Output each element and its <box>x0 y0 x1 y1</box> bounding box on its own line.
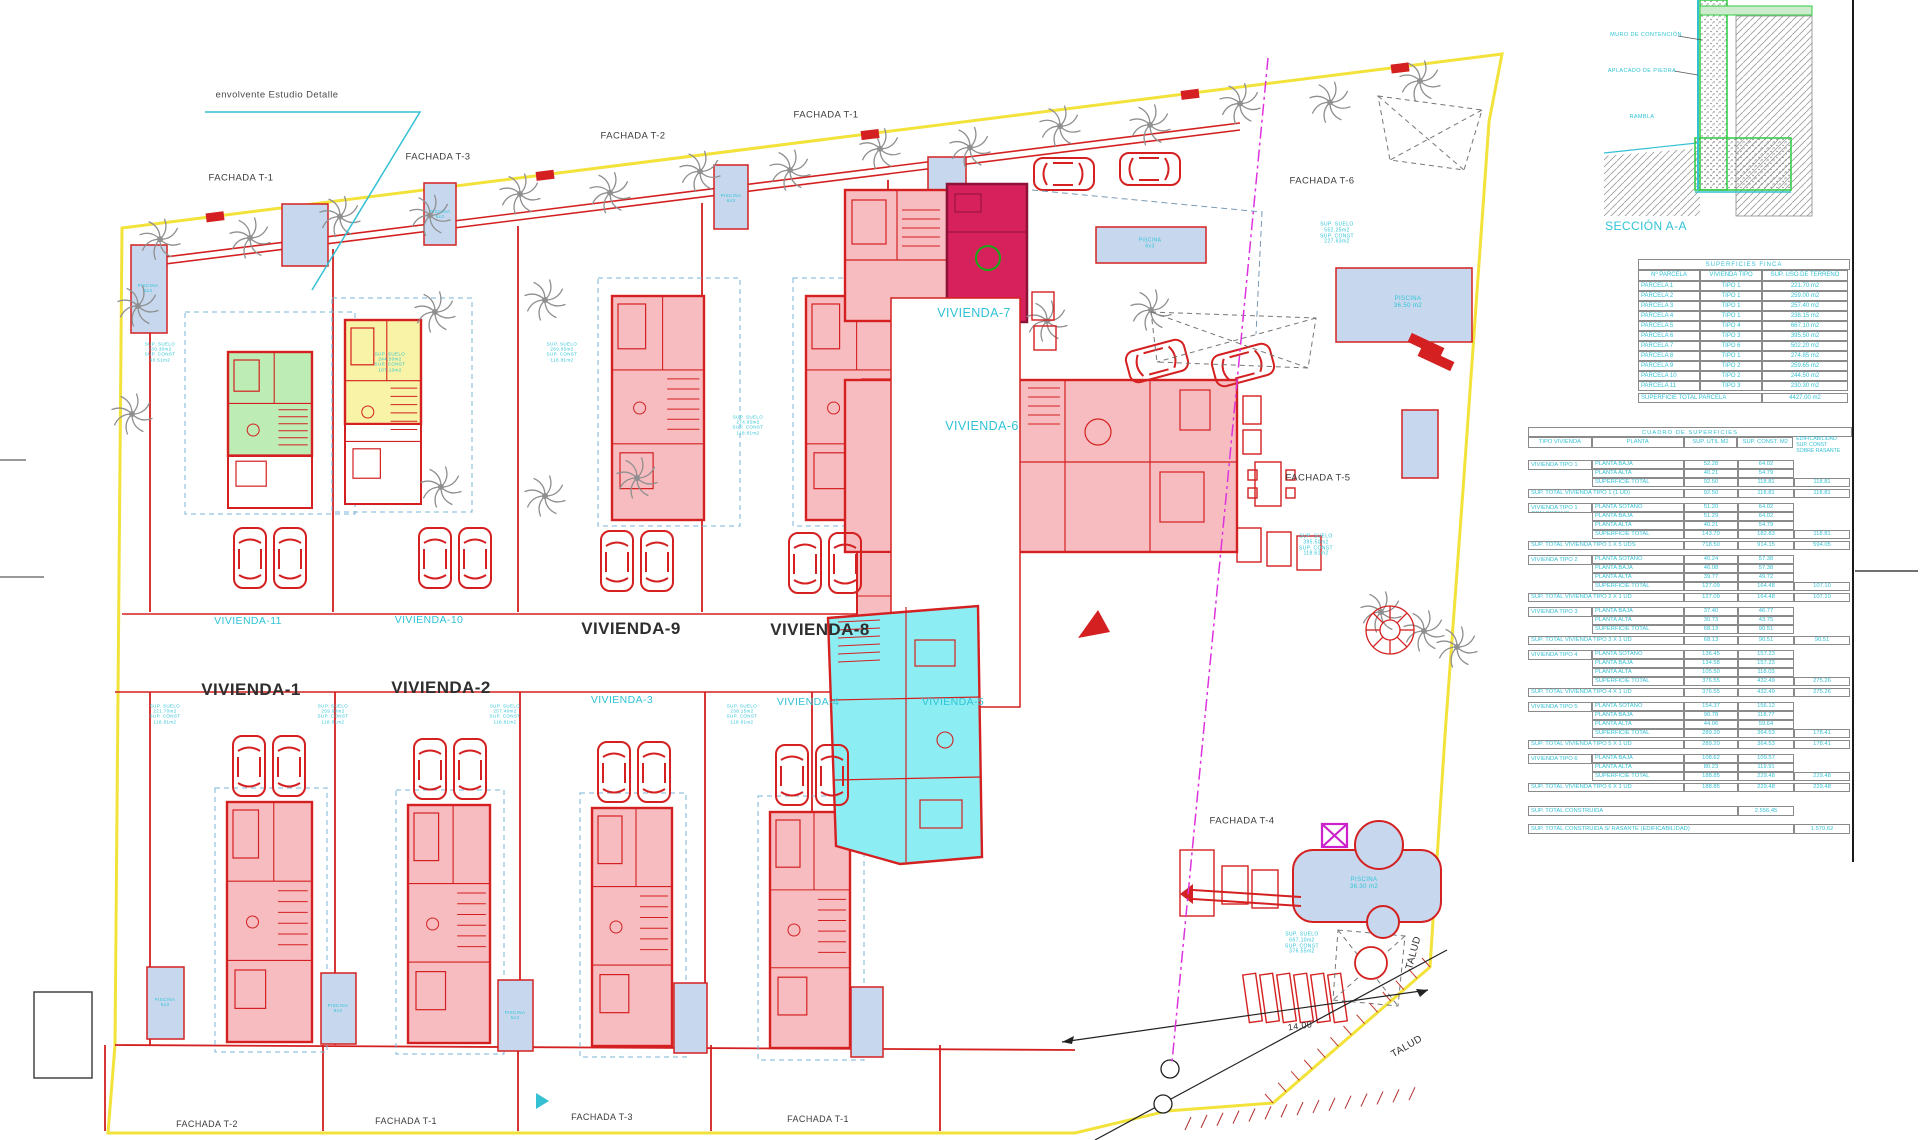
palm-tree-icon <box>525 280 566 321</box>
areas-cell: 289.20 <box>1684 729 1738 738</box>
furniture-outline <box>1222 866 1248 904</box>
finca-cell: 502.20 m2 <box>1762 341 1848 351</box>
palm-tree-icon <box>1310 82 1351 123</box>
areas-group-total: SUP. TOTAL VIVIENDA TIPO 1 X 5 UDS718.50… <box>1528 541 1852 550</box>
areas-cell: SUPERFICIE TOTAL <box>1592 729 1684 738</box>
areas-cell: 229.48 <box>1794 772 1850 781</box>
finca-cell: 244.50 m2 <box>1762 371 1848 381</box>
areas-group: VIVIENDA TIPO 1 CON SOTANOPLANTA SOTANO5… <box>1528 503 1852 539</box>
grand-total-label: SUP. TOTAL CONSTRUIDA <box>1528 806 1738 816</box>
areas-total-value: 107.10 <box>1794 593 1850 602</box>
arrow-icon <box>1180 884 1193 904</box>
finca-cell: TIPO 4 <box>1700 321 1762 331</box>
table-row: PLANTA ALTA44.0659.64 <box>1592 720 1850 729</box>
finca-cell: 395.50 m2 <box>1762 331 1848 341</box>
road-marker <box>1391 62 1410 73</box>
areas-cell: PLANTA BAJA <box>1592 754 1684 763</box>
areas-total-label: SUP. TOTAL VIVIENDA TIPO 2 X 1 UD <box>1528 593 1684 602</box>
table-row: SUPERFICIE TOTAL68.1390.51 <box>1592 625 1794 634</box>
areas-cell: 188.85 <box>1684 772 1738 781</box>
areas-cell: PLANTA SOTANO <box>1592 503 1684 512</box>
finca-cell: PARCELA 1 <box>1638 281 1700 291</box>
areas-cell: PLANTA BAJA <box>1592 659 1684 668</box>
finca-cell: 221.70 m2 <box>1762 281 1848 291</box>
table-row: PARCELA 11TIPO 3230.30 m2 <box>1638 381 1850 391</box>
palm-tree-icon <box>1131 290 1172 331</box>
finca-total-value: 4427.00 m2 <box>1762 393 1848 403</box>
areas-cell: 118.81 <box>1738 478 1794 487</box>
areas-group-tipo: VIVIENDA TIPO 3 <box>1528 607 1592 617</box>
survey-point <box>1154 1095 1172 1113</box>
areas-group: VIVIENDA TIPO 2PLANTA SOTANO40.2457.38PL… <box>1528 555 1852 591</box>
finca-cell: 230.30 m2 <box>1762 381 1848 391</box>
pergola-sail <box>1378 96 1482 170</box>
areas-group-total: SUP. TOTAL VIVIENDA TIPO 4 X 1 UD376.554… <box>1528 688 1852 697</box>
areas-cell: 59.64 <box>1738 720 1794 729</box>
furniture-outline <box>1286 470 1295 480</box>
house-plan <box>408 805 490 1043</box>
car-icon <box>273 736 305 796</box>
areas-cell: 109.57 <box>1738 754 1794 763</box>
table-row: SUPERFICIE TOTAL376.55432.49275.26 <box>1592 677 1850 686</box>
table-row: SUPERFICIE TOTAL289.20364.53178.41 <box>1592 729 1850 738</box>
finca-total-label: SUPERFICIE TOTAL PARCELA <box>1638 393 1762 403</box>
table-row: PLANTA ALTA40.2154.79 <box>1592 521 1850 530</box>
finca-cell: PARCELA 10 <box>1638 371 1700 381</box>
pool <box>131 245 167 333</box>
areas-cell: PLANTA BAJA <box>1592 512 1684 521</box>
areas-total-value: 914.15 <box>1738 541 1794 550</box>
areas-total-label: SUP. TOTAL VIVIENDA TIPO 1 (1 UD) <box>1528 489 1684 498</box>
pool <box>147 967 184 1039</box>
table-row: PARCELA 3TIPO 1257.40 m2 <box>1638 301 1850 311</box>
areas-cell: PLANTA ALTA <box>1592 573 1684 582</box>
finca-cell: TIPO 1 <box>1700 351 1762 361</box>
table-row: PLANTA SOTANO51.2064.02 <box>1592 503 1850 512</box>
finca-cell: 667.10 m2 <box>1762 321 1848 331</box>
areas-cell: 157.23 <box>1738 659 1794 668</box>
talud-tick <box>1291 1071 1299 1080</box>
areas-cell: 57.38 <box>1738 555 1794 564</box>
areas-group-tipo: VIVIENDA TIPO 1 <box>1528 460 1592 470</box>
car-icon <box>234 528 266 588</box>
furniture-outline <box>1034 326 1056 350</box>
talud-tick <box>1357 1015 1365 1024</box>
road-marker <box>1181 89 1200 100</box>
areas-cell: PLANTA BAJA <box>1592 460 1684 469</box>
areas-cell: PLANTA SOTANO <box>1592 650 1684 659</box>
table-row: PARCELA 1TIPO 1221.70 m2 <box>1638 281 1850 291</box>
areas-cell: SUPERFICIE TOTAL <box>1592 530 1684 539</box>
car-icon <box>1034 158 1094 190</box>
areas-cell: SUPERFICIE TOTAL <box>1592 677 1684 686</box>
pool <box>282 204 328 266</box>
finca-cell: TIPO 2 <box>1700 361 1762 371</box>
areas-header-row: TIPO VIVIENDAPLANTASUP. UTIL M2SUP. CONS… <box>1528 437 1852 455</box>
house-plan <box>228 352 312 508</box>
section-detail <box>1604 0 1812 216</box>
finca-cell: TIPO 2 <box>1700 371 1762 381</box>
furniture-outline <box>1243 396 1261 424</box>
legend-box <box>34 992 92 1078</box>
areas-cell: 118.81 <box>1794 478 1850 487</box>
furniture-outline <box>1255 462 1281 506</box>
areas-header-cell: PLANTA <box>1592 437 1684 448</box>
table-row: SUPERFICIE TOTAL127.09164.48107.10 <box>1592 582 1850 591</box>
areas-cell: 90.78 <box>1684 711 1738 720</box>
car-icon <box>459 528 491 588</box>
furniture-outline <box>1237 528 1261 562</box>
palm-tree-icon <box>112 394 153 435</box>
areas-cell: SUPERFICIE TOTAL <box>1592 478 1684 487</box>
magenta-marker <box>1322 824 1347 847</box>
talud-tick <box>1278 1083 1286 1092</box>
table-row: PARCELA 2TIPO 1259.00 m2 <box>1638 291 1850 301</box>
finca-cell: PARCELA 8 <box>1638 351 1700 361</box>
sun-lounger <box>1328 973 1348 1022</box>
house-plan <box>345 320 421 504</box>
finca-cell: 274.85 m2 <box>1762 351 1848 361</box>
areas-cell: 40.21 <box>1684 469 1738 478</box>
areas-total-value: 594.05 <box>1794 541 1850 550</box>
areas-total-value: 718.50 <box>1684 541 1738 550</box>
areas-cell: 40.21 <box>1684 521 1738 530</box>
furniture-outline <box>1286 488 1295 498</box>
areas-cell: 64.02 <box>1738 503 1794 512</box>
areas-cell: PLANTA ALTA <box>1592 720 1684 729</box>
survey-point <box>1161 1060 1179 1078</box>
areas-total-value: 432.49 <box>1738 688 1794 697</box>
finca-total-row: SUPERFICIE TOTAL PARCELA4427.00 m2 <box>1638 393 1850 403</box>
finca-cell: TIPO 3 <box>1700 331 1762 341</box>
sun-lounger <box>1277 973 1297 1022</box>
finca-cell: PARCELA 11 <box>1638 381 1700 391</box>
finca-cell: PARCELA 3 <box>1638 301 1700 311</box>
areas-cell: 127.09 <box>1684 582 1738 591</box>
table-row: PLANTA BAJA52.2864.02 <box>1592 460 1850 469</box>
road-marker <box>536 170 555 181</box>
areas-total-value: 164.48 <box>1738 593 1794 602</box>
pool-circle <box>1355 821 1403 869</box>
areas-total-value: 364.53 <box>1738 740 1794 749</box>
road-marker <box>206 211 225 222</box>
areas-cell: 51.29 <box>1684 512 1738 521</box>
areas-total-value: 188.85 <box>1684 783 1738 792</box>
table-row: PARCELA 4TIPO 1238.15 m2 <box>1638 311 1850 321</box>
table-row: PLANTA SOTANO40.2457.38 <box>1592 555 1850 564</box>
areas-cell: 364.53 <box>1738 729 1794 738</box>
car-icon <box>601 531 633 591</box>
grand-total-value: 1.570,62 <box>1794 824 1850 834</box>
areas-cell: 54.79 <box>1738 521 1794 530</box>
areas-cell: 49.72 <box>1738 573 1794 582</box>
areas-cell: PLANTA BAJA <box>1592 711 1684 720</box>
car-icon <box>1124 338 1190 384</box>
table-row: PARCELA 8TIPO 1274.85 m2 <box>1638 351 1850 361</box>
areas-total-value: 289.20 <box>1684 740 1738 749</box>
furniture-outline <box>1267 532 1291 566</box>
areas-cell: 105.50 <box>1684 668 1738 677</box>
table-row: PARCELA 6TIPO 3395.50 m2 <box>1638 331 1850 341</box>
areas-total-label: SUP. TOTAL VIVIENDA TIPO 3 X 1 UD <box>1528 636 1684 645</box>
areas-cell: 64.02 <box>1738 512 1794 521</box>
marker-triangle-icon <box>536 1093 549 1109</box>
areas-total-value: 118.81 <box>1794 489 1850 498</box>
grand-total-value: 2.556,45 <box>1738 806 1794 816</box>
areas-cell: PLANTA SOTANO <box>1592 555 1684 564</box>
finca-header-row: Nº PARCELAVIVIENDA TIPOSUP. USO DE TERRE… <box>1638 270 1850 281</box>
pool <box>674 983 707 1053</box>
areas-cell: 44.06 <box>1684 720 1738 729</box>
areas-cell: 57.38 <box>1738 564 1794 573</box>
sun-lounger <box>1294 973 1314 1022</box>
areas-cell: 64.02 <box>1738 460 1794 469</box>
house-plan <box>227 802 312 1042</box>
areas-cell: 118.81 <box>1794 530 1850 539</box>
areas-cell: 118.77 <box>1738 711 1794 720</box>
areas-group-total: SUP. TOTAL VIVIENDA TIPO 5 X 1 UD289.203… <box>1528 740 1852 749</box>
areas-total-label: SUP. TOTAL VIVIENDA TIPO 5 X 1 UD <box>1528 740 1684 749</box>
areas-group: VIVIENDA TIPO 5PLANTA SOTANO154.37156.12… <box>1528 702 1852 738</box>
areas-cell: 156.12 <box>1738 702 1794 711</box>
areas-cell: 54.79 <box>1738 469 1794 478</box>
areas-header-cell: SUP. CONST. M2 <box>1737 437 1793 448</box>
patio-table <box>1355 947 1387 979</box>
table-row: PARCELA 5TIPO 4667.10 m2 <box>1638 321 1850 331</box>
finca-cell: PARCELA 5 <box>1638 321 1700 331</box>
talud-tick <box>1330 1037 1338 1046</box>
areas-cell: 52.28 <box>1684 460 1738 469</box>
table-row: PLANTA SOTANO136.45157.23 <box>1592 650 1850 659</box>
pool <box>321 973 356 1044</box>
house-plan <box>612 296 704 520</box>
table-row: PLANTA ALTA30.7343.75 <box>1592 616 1794 625</box>
areas-total-value: 68.13 <box>1684 636 1738 645</box>
areas-header-cell: TIPO VIVIENDA <box>1528 437 1592 448</box>
finca-cell: TIPO 3 <box>1700 381 1762 391</box>
areas-group-total: SUP. TOTAL VIVIENDA TIPO 2 X 1 UD127.091… <box>1528 593 1852 602</box>
car-icon <box>1120 153 1180 185</box>
areas-total-value: 275.26 <box>1794 688 1850 697</box>
talud-tick <box>1409 969 1417 978</box>
pool <box>1336 268 1472 342</box>
areas-cell: 154.37 <box>1684 702 1738 711</box>
areas-cell: 178.41 <box>1794 729 1850 738</box>
finca-cell: TIPO 6 <box>1700 341 1762 351</box>
areas-group: VIVIENDA TIPO 4PLANTA SOTANO136.45157.23… <box>1528 650 1852 686</box>
car-icon <box>274 528 306 588</box>
pool <box>851 987 883 1057</box>
sun-lounger <box>1260 973 1280 1022</box>
table-row: PLANTA BAJA51.2964.02 <box>1592 512 1850 521</box>
table-row: PLANTA BAJA37.4046.77 <box>1592 607 1794 616</box>
areas-cell: 92.50 <box>1684 478 1738 487</box>
areas-cell: 134.58 <box>1684 659 1738 668</box>
table-row: PLANTA SOTANO154.37156.12 <box>1592 702 1850 711</box>
furniture-outline <box>1297 536 1321 570</box>
finca-cell: TIPO 1 <box>1700 291 1762 301</box>
superficie-finca-table: SUPERFICIES FINCANº PARCELAVIVIENDA TIPO… <box>1638 259 1850 403</box>
table-row: PLANTA BAJA134.58157.23 <box>1592 659 1850 668</box>
areas-cell: 376.55 <box>1684 677 1738 686</box>
palm-tree-icon <box>421 467 462 508</box>
spa-circle <box>1367 906 1399 938</box>
table-row: PLANTA BAJA108.62109.57 <box>1592 754 1850 763</box>
cuadro-superficies-table: CUADRO DE SUPERFICIESTIPO VIVIENDAPLANTA… <box>1528 427 1852 834</box>
finca-cell: 257.40 m2 <box>1762 301 1848 311</box>
areas-cell: PLANTA BAJA <box>1592 564 1684 573</box>
areas-grand-total: SUP. TOTAL CONSTRUIDA S/ RASANTE (EDIFIC… <box>1528 824 1852 834</box>
finca-header-cell: Nº PARCELA <box>1638 270 1700 281</box>
grand-total-label: SUP. TOTAL CONSTRUIDA S/ RASANTE (EDIFIC… <box>1528 824 1794 834</box>
furniture-outline <box>1243 430 1261 454</box>
table-row: PARCELA 10TIPO 2244.50 m2 <box>1638 371 1850 381</box>
car-icon <box>419 528 451 588</box>
areas-cell: 40.24 <box>1684 555 1738 564</box>
areas-group-tipo: VIVIENDA TIPO 2 <box>1528 555 1592 565</box>
areas-cell: 107.10 <box>1794 582 1850 591</box>
car-icon <box>233 736 265 796</box>
areas-grand-total: SUP. TOTAL CONSTRUIDA2.556,45 <box>1528 806 1852 816</box>
areas-cell: 46.08 <box>1684 564 1738 573</box>
areas-total-value: 376.55 <box>1684 688 1738 697</box>
finca-cell: PARCELA 7 <box>1638 341 1700 351</box>
circular-feature <box>1366 606 1414 654</box>
finca-cell: PARCELA 9 <box>1638 361 1700 371</box>
areas-group: VIVIENDA TIPO 6PLANTA BAJA108.62109.57PL… <box>1528 754 1852 781</box>
areas-total-value: 127.09 <box>1684 593 1738 602</box>
areas-group-total: SUP. TOTAL VIVIENDA TIPO 6 X 1 UD188.852… <box>1528 783 1852 792</box>
site-plan-sheet: envolvente Estudio DetalleFACHADA T-1FAC… <box>0 0 1920 1140</box>
areas-group: VIVIENDA TIPO 3PLANTA BAJA37.4046.77PLAN… <box>1528 607 1852 634</box>
areas-cell: PLANTA ALTA <box>1592 616 1684 625</box>
areas-total-value: 229.48 <box>1794 783 1850 792</box>
finca-table-title: SUPERFICIES FINCA <box>1638 259 1850 270</box>
areas-cell: PLANTA ALTA <box>1592 521 1684 530</box>
areas-cell: SUPERFICIE TOTAL <box>1592 772 1684 781</box>
property-line <box>1172 58 1268 1062</box>
areas-cell: 68.13 <box>1684 625 1738 634</box>
areas-cell: 39.77 <box>1684 573 1738 582</box>
palm-tree-icon <box>525 476 566 517</box>
areas-group-total: SUP. TOTAL VIVIENDA TIPO 1 (1 UD)92.5011… <box>1528 489 1852 498</box>
areas-group-tipo: VIVIENDA TIPO 6 <box>1528 754 1592 764</box>
areas-cell: 80.23 <box>1684 763 1738 772</box>
pool <box>1096 227 1206 263</box>
areas-cell: PLANTA ALTA <box>1592 469 1684 478</box>
areas-cell: 119.91 <box>1738 763 1794 772</box>
table-row: PLANTA ALTA105.50118.03 <box>1592 668 1850 677</box>
areas-cell: 136.45 <box>1684 650 1738 659</box>
areas-total-value: 178.41 <box>1794 740 1850 749</box>
areas-group-tipo: VIVIENDA TIPO 1 CON SOTANO <box>1528 503 1592 513</box>
areas-total-value: 229.48 <box>1738 783 1794 792</box>
finca-cell: 259.65 m2 <box>1762 361 1848 371</box>
table-row: PLANTA BAJA46.0857.38 <box>1592 564 1850 573</box>
areas-group-total: SUP. TOTAL VIVIENDA TIPO 3 X 1 UD68.1390… <box>1528 636 1852 645</box>
areas-group-tipo: VIVIENDA TIPO 4 <box>1528 650 1592 660</box>
areas-total-label: SUP. TOTAL VIVIENDA TIPO 6 X 1 UD <box>1528 783 1684 792</box>
table-row: PLANTA ALTA80.23119.91 <box>1592 763 1850 772</box>
house-plan <box>592 808 672 1046</box>
areas-cell: 229.48 <box>1738 772 1794 781</box>
areas-cell: 182.83 <box>1738 530 1794 539</box>
table-row: PARCELA 9TIPO 2259.65 m2 <box>1638 361 1850 371</box>
finca-cell: TIPO 1 <box>1700 281 1762 291</box>
table-row: PLANTA ALTA39.7749.72 <box>1592 573 1850 582</box>
talud-tick <box>1344 1026 1352 1035</box>
talud-tick <box>1265 1094 1273 1103</box>
finca-cell: TIPO 1 <box>1700 311 1762 321</box>
areas-cell: 46.77 <box>1738 607 1794 616</box>
areas-cell: 30.73 <box>1684 616 1738 625</box>
areas-cell: 43.75 <box>1738 616 1794 625</box>
areas-total-label: SUP. TOTAL VIVIENDA TIPO 1 X 5 UDS <box>1528 541 1684 550</box>
areas-cell: 157.23 <box>1738 650 1794 659</box>
red-fan-shape <box>1078 610 1110 638</box>
areas-cell: 108.62 <box>1684 754 1738 763</box>
talud-tick <box>1304 1060 1312 1069</box>
pool <box>714 165 748 229</box>
car-icon <box>789 533 821 593</box>
table-row: PLANTA ALTA40.2154.79 <box>1592 469 1850 478</box>
areas-total-value: 118.81 <box>1738 489 1794 498</box>
pool <box>498 980 533 1051</box>
areas-header-cell: SUP. UTIL M2 <box>1684 437 1738 448</box>
table-row: SUPERFICIE TOTAL143.70182.83118.81 <box>1592 530 1850 539</box>
areas-total-value: 92.50 <box>1684 489 1738 498</box>
table-row: SUPERFICIE TOTAL188.85229.48229.48 <box>1592 772 1850 781</box>
areas-cell: 51.20 <box>1684 503 1738 512</box>
finca-header-cell: VIVIENDA TIPO <box>1700 270 1762 281</box>
areas-cell: SUPERFICIE TOTAL <box>1592 625 1684 634</box>
finca-cell: TIPO 1 <box>1700 301 1762 311</box>
areas-group-tipo: VIVIENDA TIPO 5 <box>1528 702 1592 712</box>
table-row: SUPERFICIE TOTAL92.50118.81118.81 <box>1592 478 1850 487</box>
areas-group: VIVIENDA TIPO 1PLANTA BAJA52.2864.02PLAN… <box>1528 460 1852 487</box>
areas-cell: 143.70 <box>1684 530 1738 539</box>
areas-total-label: SUP. TOTAL VIVIENDA TIPO 4 X 1 UD <box>1528 688 1684 697</box>
house-plan-cyan <box>828 606 982 864</box>
palm-tree-icon <box>1437 627 1478 668</box>
areas-cell: 37.40 <box>1684 607 1738 616</box>
areas-total-value: 90.51 <box>1738 636 1794 645</box>
areas-header-note: EDIFICABILIDAD SUP. CONST SOBRE RASANTE <box>1793 437 1852 455</box>
talud-tick <box>1317 1049 1325 1058</box>
areas-cell: SUPERFICIE TOTAL <box>1592 582 1684 591</box>
talud-tick <box>1370 1003 1378 1012</box>
table-row: PLANTA BAJA90.78118.77 <box>1592 711 1850 720</box>
car-icon <box>641 531 673 591</box>
finca-cell: PARCELA 6 <box>1638 331 1700 341</box>
table-row: PARCELA 7TIPO 6502.20 m2 <box>1638 341 1850 351</box>
furniture-outline <box>1180 850 1214 916</box>
areas-cell: 164.48 <box>1738 582 1794 591</box>
finca-cell: PARCELA 4 <box>1638 311 1700 321</box>
areas-cell: PLANTA ALTA <box>1592 668 1684 677</box>
areas-cell: 432.49 <box>1738 677 1794 686</box>
finca-header-cell: SUP. USO DE TERRENO <box>1762 270 1848 281</box>
areas-cell: PLANTA BAJA <box>1592 607 1684 616</box>
pool <box>1402 410 1438 478</box>
areas-cell: 275.26 <box>1794 677 1850 686</box>
areas-cell: 118.03 <box>1738 668 1794 677</box>
areas-cell: 90.51 <box>1738 625 1794 634</box>
finca-cell: 259.00 m2 <box>1762 291 1848 301</box>
areas-cell: PLANTA SOTANO <box>1592 702 1684 711</box>
areas-total-value: 90.51 <box>1794 636 1850 645</box>
finca-cell: 238.15 m2 <box>1762 311 1848 321</box>
